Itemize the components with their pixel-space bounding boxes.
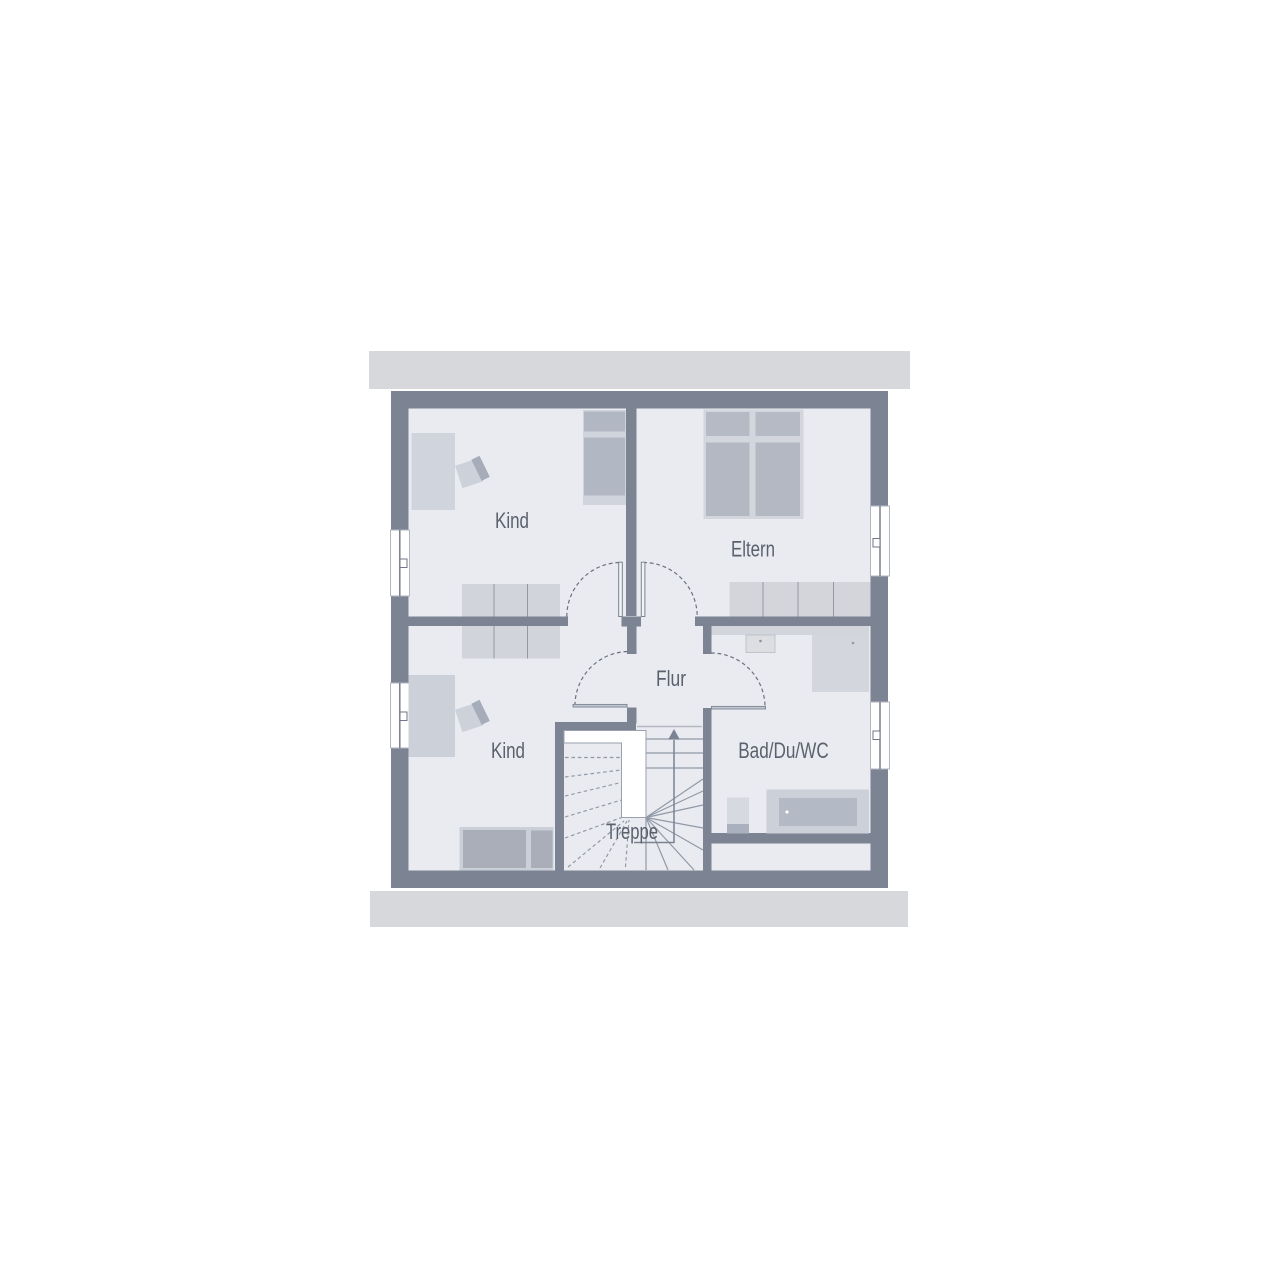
svg-text:Kind: Kind [495,508,529,533]
svg-text:Kind: Kind [491,738,525,763]
svg-text:Treppe: Treppe [606,819,658,844]
svg-text:Bad/Du/WC: Bad/Du/WC [738,738,829,763]
svg-text:Flur: Flur [656,666,686,691]
svg-text:Eltern: Eltern [731,537,775,562]
